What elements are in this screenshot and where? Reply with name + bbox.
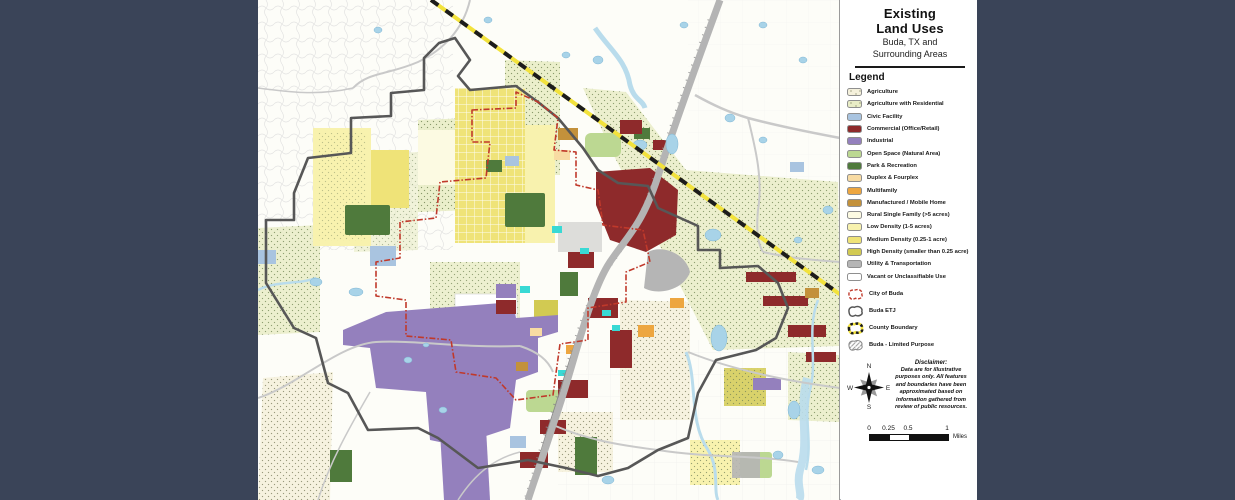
screenshot-stage: Existing Land Uses Buda, TX and Surround… [0, 0, 1235, 500]
legend-heading: Legend [849, 72, 973, 83]
legend-boundary-label: Buda - Limited Purpose [869, 342, 934, 348]
compass-w: W [847, 385, 854, 392]
title-divider [855, 66, 965, 68]
legend-item-label: Vacant or Unclassifiable Use [867, 274, 946, 280]
legend-boundary-label: Buda ETJ [869, 308, 896, 314]
compass-rose: N S W E [847, 360, 891, 415]
legend-item-label: Manufactured / Mobile Home [867, 200, 946, 206]
high_density-swatch [847, 248, 862, 256]
legend-item-agriculture: Agriculture [847, 86, 973, 98]
legend-item-label: Civic Facility [867, 114, 902, 120]
utility-swatch [847, 260, 862, 268]
med_density-swatch [847, 236, 862, 244]
compass-s: S [867, 404, 872, 410]
agriculture-swatch [847, 88, 862, 96]
map-title-line2: Land Uses [847, 21, 973, 36]
map-subtitle-line1: Buda, TX and [847, 37, 973, 48]
legend-item-manufactured: Manufactured / Mobile Home [847, 197, 973, 209]
legend-item-label: Utility & Transportation [867, 261, 931, 267]
scale-tick: 1 [945, 425, 949, 432]
legend-boundary-county: County Boundary [847, 320, 973, 337]
scale-tick: 0.5 [903, 425, 912, 432]
city-boundary-swatch [847, 287, 865, 301]
legend-footer: N S W E Disclaimer: Data are for illustr… [847, 360, 973, 415]
park-swatch [847, 162, 862, 170]
industrial-swatch [847, 137, 862, 145]
civic-swatch [847, 113, 862, 121]
legend-item-med_density: Medium Density (0.25-1 acre) [847, 234, 973, 246]
scale-bar: 00.250.51 Miles [869, 425, 969, 447]
legend-item-label: Rural Single Family (>5 acres) [867, 212, 950, 218]
disclaimer-heading: Disclaimer: [891, 360, 971, 366]
scale-bar-strip [869, 434, 949, 441]
legend-item-label: Agriculture with Residential [867, 101, 944, 107]
vacant-swatch [847, 273, 862, 281]
legend-item-industrial: Industrial [847, 135, 973, 147]
agri_res-swatch [847, 100, 862, 108]
scale-ticks: 00.250.51 [869, 425, 969, 433]
legend-item-vacant: Vacant or Unclassifiable Use [847, 270, 973, 282]
legend-boundary-etj: Buda ETJ [847, 303, 973, 320]
legend-item-high_density: High Density (smaller than 0.25 acre) [847, 246, 973, 258]
legend-item-rural_sf: Rural Single Family (>5 acres) [847, 209, 973, 221]
duplex-swatch [847, 174, 862, 182]
land-use-map [258, 0, 840, 500]
legend-item-label: Duplex & Fourplex [867, 175, 918, 181]
map-subtitle-line2: Surrounding Areas [847, 49, 973, 60]
map-title-block: Existing Land Uses Buda, TX and Surround… [847, 6, 973, 60]
legend-boundary-city: City of Buda [847, 286, 973, 303]
legend-item-agri_res: Agriculture with Residential [847, 98, 973, 110]
scale-unit: Miles [953, 434, 967, 440]
legend-item-open_space: Open Space (Natural Area) [847, 147, 973, 159]
legend-boundary-limited: Buda - Limited Purpose [847, 337, 973, 354]
map-title-line1: Existing [847, 6, 973, 21]
legend-item-low_density: Low Density (1-5 acres) [847, 221, 973, 233]
rural_sf-swatch [847, 211, 862, 219]
open_space-swatch [847, 150, 862, 158]
map-sheet: Existing Land Uses Buda, TX and Surround… [258, 0, 977, 500]
commercial-swatch [847, 125, 862, 133]
legend-item-duplex: Duplex & Fourplex [847, 172, 973, 184]
legend-item-utility: Utility & Transportation [847, 258, 973, 270]
manufactured-swatch [847, 199, 862, 207]
legend-item-list: AgricultureAgriculture with ResidentialC… [847, 86, 973, 283]
compass-n: N [867, 363, 872, 370]
limited-boundary-swatch [847, 338, 865, 352]
county-boundary-swatch [847, 321, 865, 335]
legend-item-label: Low Density (1-5 acres) [867, 224, 932, 230]
legend-boundary-list: City of BudaBuda ETJCounty BoundaryBuda … [847, 286, 973, 354]
legend-item-label: Commercial (Office/Retail) [867, 126, 939, 132]
legend-panel: Existing Land Uses Buda, TX and Surround… [841, 0, 977, 500]
legend-item-multifamily: Multifamily [847, 184, 973, 196]
legend-item-label: Industrial [867, 138, 893, 144]
legend-item-label: Multifamily [867, 188, 897, 194]
legend-item-label: Open Space (Natural Area) [867, 151, 940, 157]
scale-tick: 0 [867, 425, 871, 432]
scale-tick: 0.25 [882, 425, 895, 432]
map-canvas [258, 0, 840, 500]
legend-boundary-label: County Boundary [869, 325, 918, 331]
legend-item-label: Agriculture [867, 89, 898, 95]
low_density-swatch [847, 223, 862, 231]
disclaimer: Disclaimer: Data are for illustrative pu… [891, 360, 973, 415]
legend-item-civic: Civic Facility [847, 111, 973, 123]
legend-item-label: Medium Density (0.25-1 acre) [867, 237, 947, 243]
etj-boundary-swatch [847, 304, 865, 318]
legend-item-label: Park & Recreation [867, 163, 917, 169]
legend-item-label: High Density (smaller than 0.25 acre) [867, 249, 968, 255]
legend-item-commercial: Commercial (Office/Retail) [847, 123, 973, 135]
legend-item-park: Park & Recreation [847, 160, 973, 172]
disclaimer-body: Data are for illustrative purposes only.… [891, 367, 971, 412]
legend-boundary-label: City of Buda [869, 291, 903, 297]
multifamily-swatch [847, 187, 862, 195]
